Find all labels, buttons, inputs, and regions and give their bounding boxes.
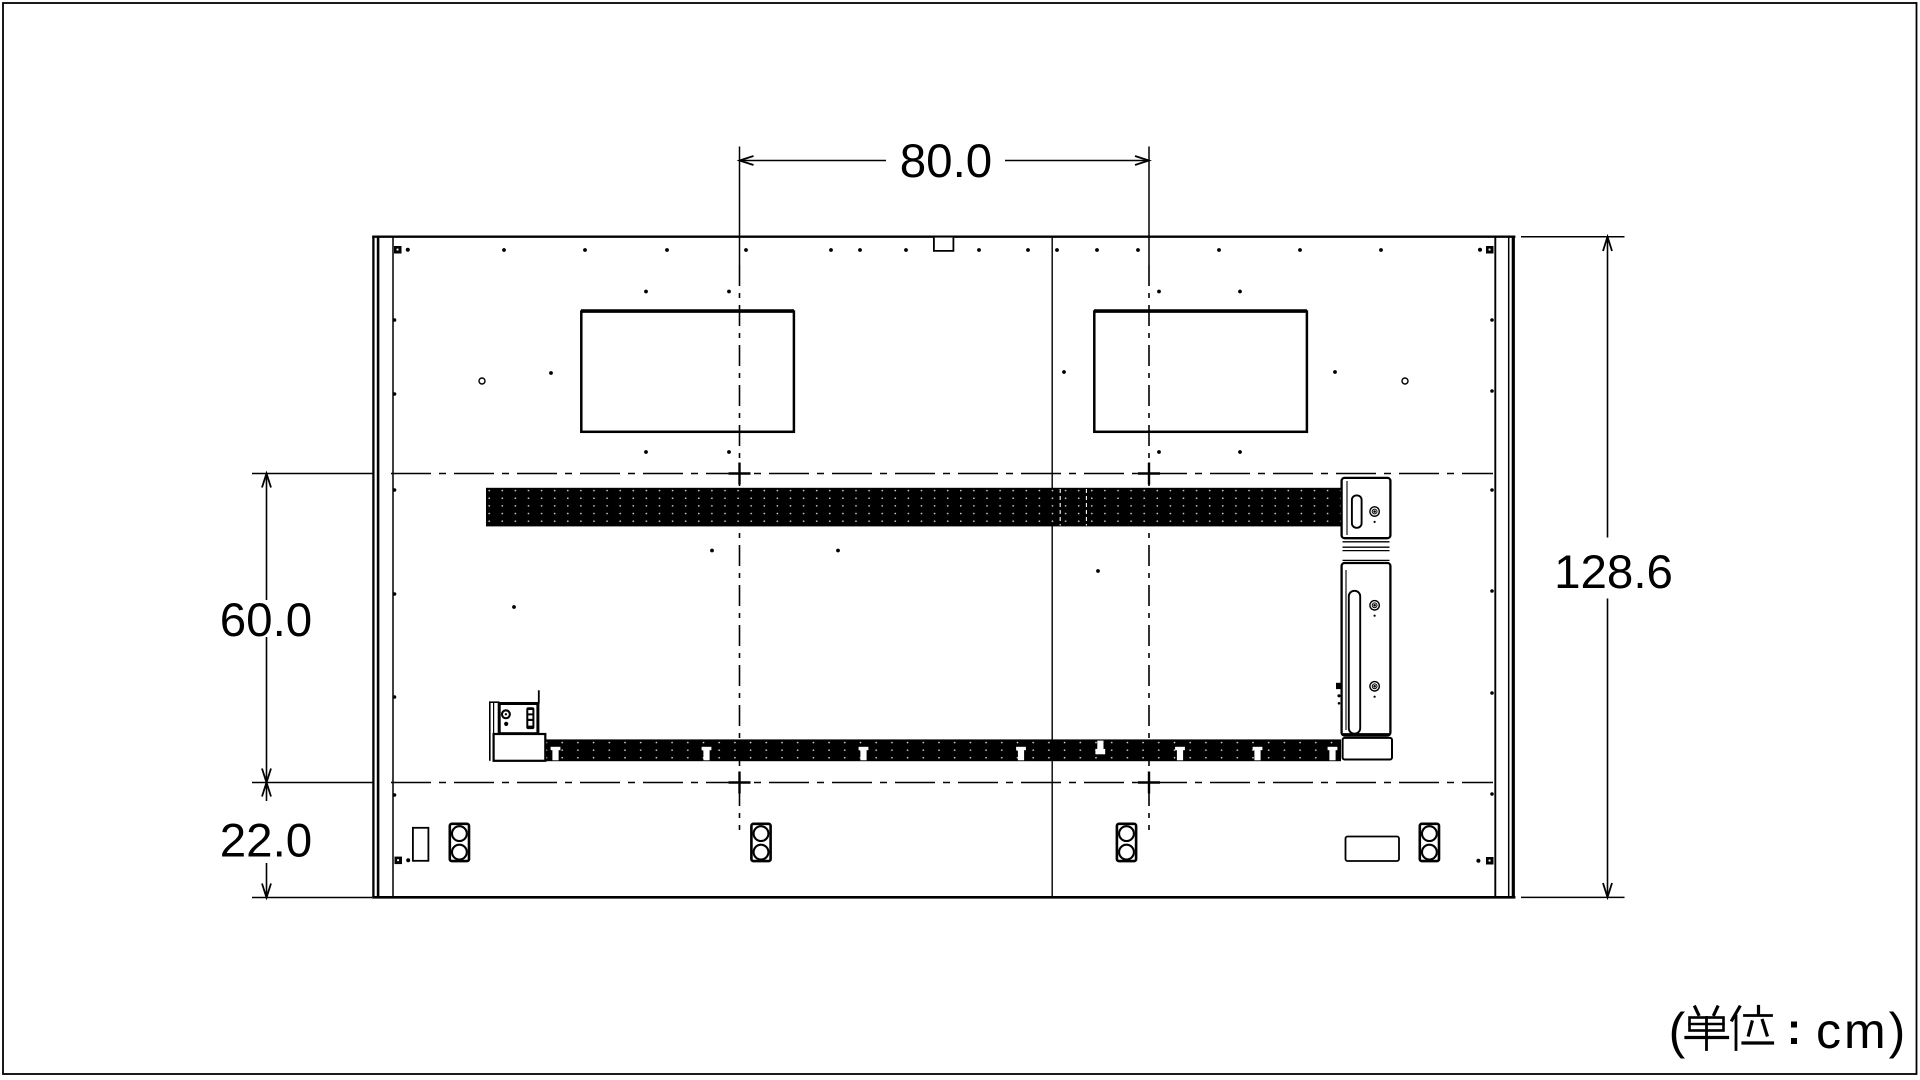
svg-text:128.6: 128.6 [1554,546,1673,599]
svg-text:cm): cm) [1816,1003,1908,1059]
svg-text:22.0: 22.0 [220,815,312,868]
svg-text:60.0: 60.0 [220,594,312,647]
svg-text:80.0: 80.0 [900,135,992,188]
svg-text:(: ( [1669,1003,1686,1059]
